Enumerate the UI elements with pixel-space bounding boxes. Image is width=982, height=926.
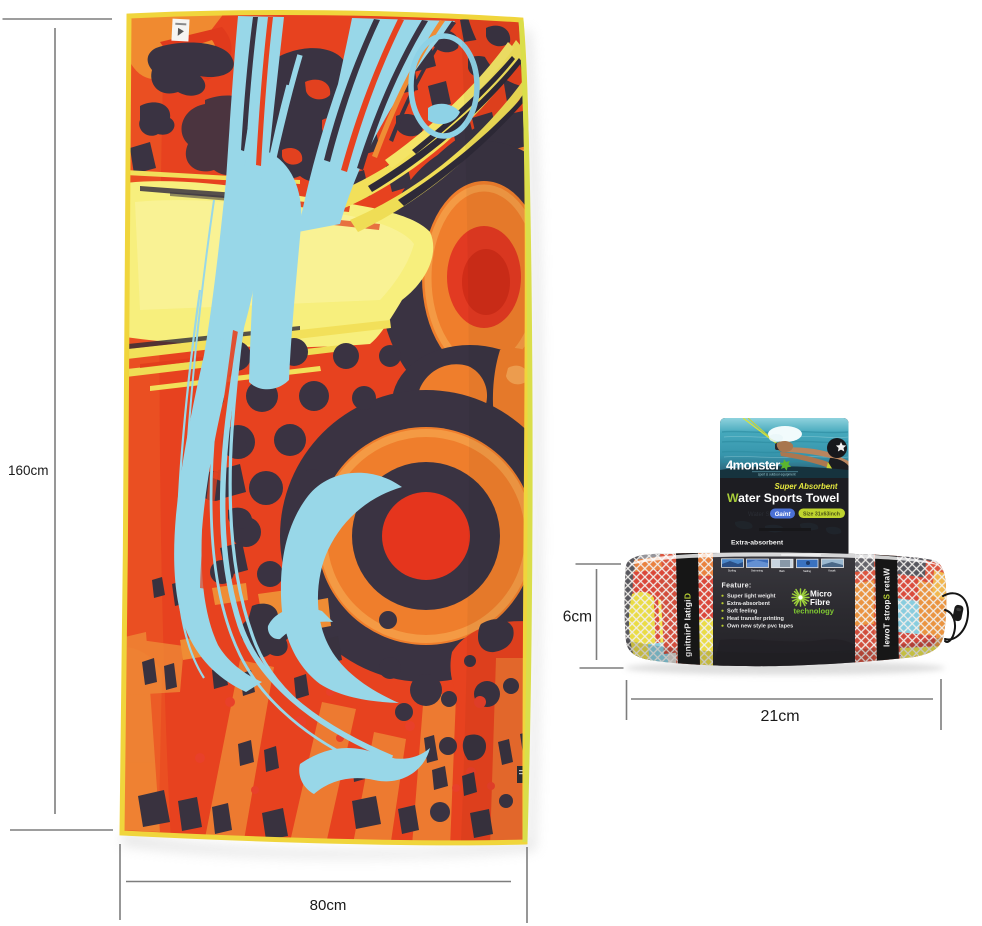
svg-text:Extra-absorbent: Extra-absorbent xyxy=(727,601,770,607)
svg-text:sport & outdoor equipment: sport & outdoor equipment xyxy=(758,473,796,477)
svg-text:Surfing: Surfing xyxy=(728,569,737,573)
svg-text:Super Absorbent: Super Absorbent xyxy=(775,482,838,491)
svg-text:lewoT stropS retaW: lewoT stropS retaW xyxy=(883,568,892,647)
svg-text:Gaint: Gaint xyxy=(775,511,792,518)
svg-text:Feature:: Feature: xyxy=(722,583,752,590)
svg-text:Kayak: Kayak xyxy=(828,569,836,573)
svg-text:Bath: Bath xyxy=(779,569,785,573)
svg-text:Extra-absorbent: Extra-absorbent xyxy=(731,540,784,547)
svg-text:160cm: 160cm xyxy=(8,463,49,478)
svg-text:Size 31x63inch: Size 31x63inch xyxy=(803,512,840,518)
svg-text:Heat transfer printing: Heat transfer printing xyxy=(727,616,784,622)
svg-text:Super light weight: Super light weight xyxy=(727,594,776,600)
svg-text:Own new style pvc tapes: Own new style pvc tapes xyxy=(727,624,793,630)
svg-text:6cm: 6cm xyxy=(563,609,592,626)
svg-text:technology: technology xyxy=(794,607,835,616)
svg-text:21cm: 21cm xyxy=(760,708,799,725)
svg-text:Swimming: Swimming xyxy=(751,569,764,573)
svg-text:Soft feeling: Soft feeling xyxy=(727,609,758,615)
svg-text:Sailing: Sailing xyxy=(803,569,811,573)
svg-text:Water Sports Towel: Water Sports Towel xyxy=(727,491,839,505)
svg-text:gnitnirP latigiD: gnitnirP latigiD xyxy=(683,593,693,657)
svg-text:80cm: 80cm xyxy=(310,897,347,914)
svg-text:Water Sp: Water Sp xyxy=(748,512,773,518)
svg-text:4monster: 4monster xyxy=(726,458,780,473)
